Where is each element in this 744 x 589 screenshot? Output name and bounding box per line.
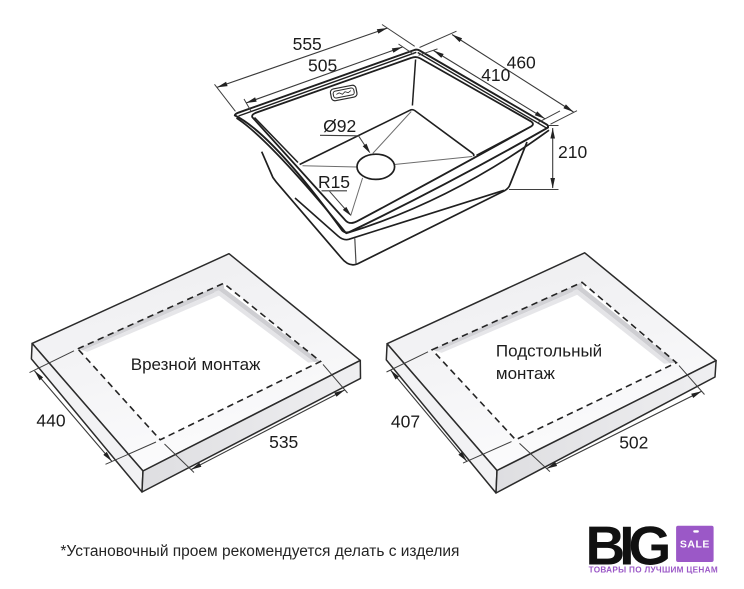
svg-text:535: 535: [269, 432, 298, 452]
svg-text:Ø92: Ø92: [323, 116, 356, 136]
svg-text:ТОВАРЫ ПО ЛУЧШИМ ЦЕНАМ: ТОВАРЫ ПО ЛУЧШИМ ЦЕНАМ: [589, 566, 718, 575]
svg-text:*Установочный проем рекомендуе: *Установочный проем рекомендуется делать…: [60, 543, 459, 560]
svg-text:SALE: SALE: [680, 539, 710, 551]
svg-text:440: 440: [36, 411, 65, 431]
svg-text:монтаж: монтаж: [496, 364, 556, 383]
svg-text:505: 505: [308, 56, 337, 76]
svg-text:407: 407: [391, 412, 420, 432]
svg-text:460: 460: [507, 52, 536, 72]
svg-text:Врезной монтаж: Врезной монтаж: [131, 355, 261, 374]
svg-text:502: 502: [619, 433, 648, 453]
svg-text:Подстольный: Подстольный: [496, 342, 602, 361]
svg-text:555: 555: [293, 34, 322, 54]
svg-text:410: 410: [481, 65, 510, 85]
svg-text:210: 210: [558, 142, 587, 162]
svg-text:R15: R15: [318, 172, 350, 192]
